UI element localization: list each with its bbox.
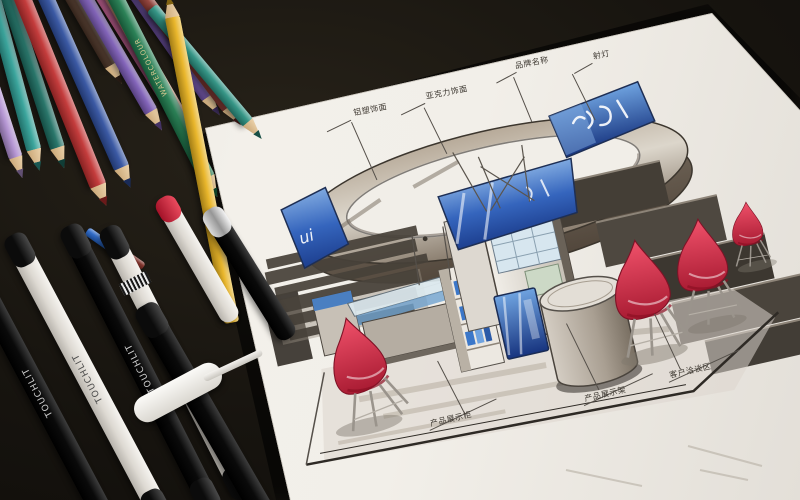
annotation-top-1: 铝塑饰面: [353, 101, 388, 117]
photo-scene: ui: [0, 0, 800, 500]
pencil-tip: [9, 155, 29, 180]
marker-red-cap: [152, 192, 184, 226]
annotation-top-2: 亚克力饰面: [425, 83, 469, 101]
pencil-tip: [27, 147, 47, 172]
annotation-top-4: 射灯: [592, 48, 611, 61]
